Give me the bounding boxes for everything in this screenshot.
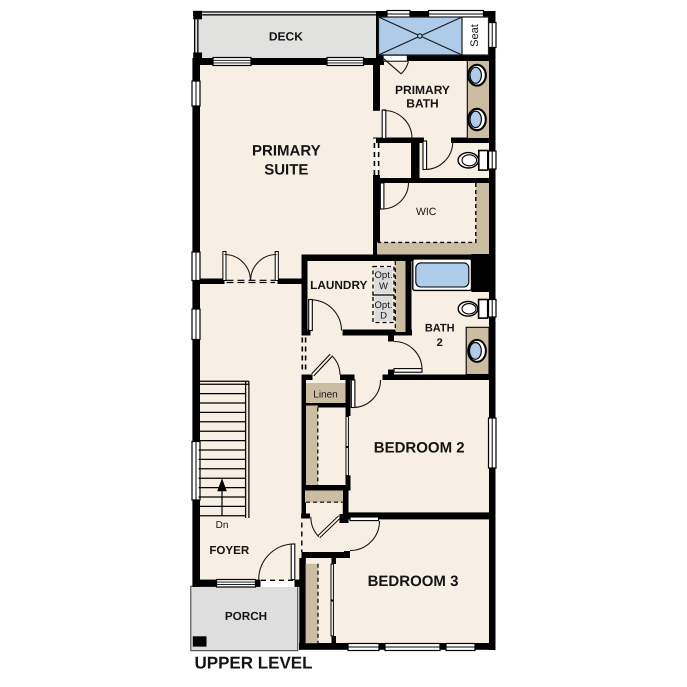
svg-text:Linen: Linen: [313, 389, 337, 400]
svg-text:PORCH: PORCH: [225, 610, 267, 623]
svg-text:WIC: WIC: [416, 206, 437, 218]
svg-text:Dn: Dn: [216, 520, 229, 531]
svg-text:PRIMARY: PRIMARY: [395, 83, 450, 97]
svg-text:W: W: [379, 281, 388, 292]
svg-text:2: 2: [437, 337, 443, 349]
svg-text:Seat: Seat: [469, 24, 481, 47]
svg-text:LAUNDRY: LAUNDRY: [310, 278, 367, 292]
svg-text:BEDROOM 3: BEDROOM 3: [368, 573, 459, 590]
svg-text:BATH: BATH: [425, 323, 455, 335]
svg-text:BATH: BATH: [406, 96, 438, 110]
svg-text:PRIMARY: PRIMARY: [252, 142, 321, 159]
svg-text:DECK: DECK: [269, 30, 303, 44]
svg-text:Opt.: Opt.: [375, 270, 393, 281]
svg-text:UPPER LEVEL: UPPER LEVEL: [194, 653, 312, 672]
svg-text:D: D: [380, 310, 387, 321]
svg-text:Opt.: Opt.: [375, 300, 393, 311]
svg-text:FOYER: FOYER: [209, 544, 250, 557]
svg-text:SUITE: SUITE: [264, 162, 308, 179]
svg-text:BEDROOM 2: BEDROOM 2: [374, 439, 465, 456]
